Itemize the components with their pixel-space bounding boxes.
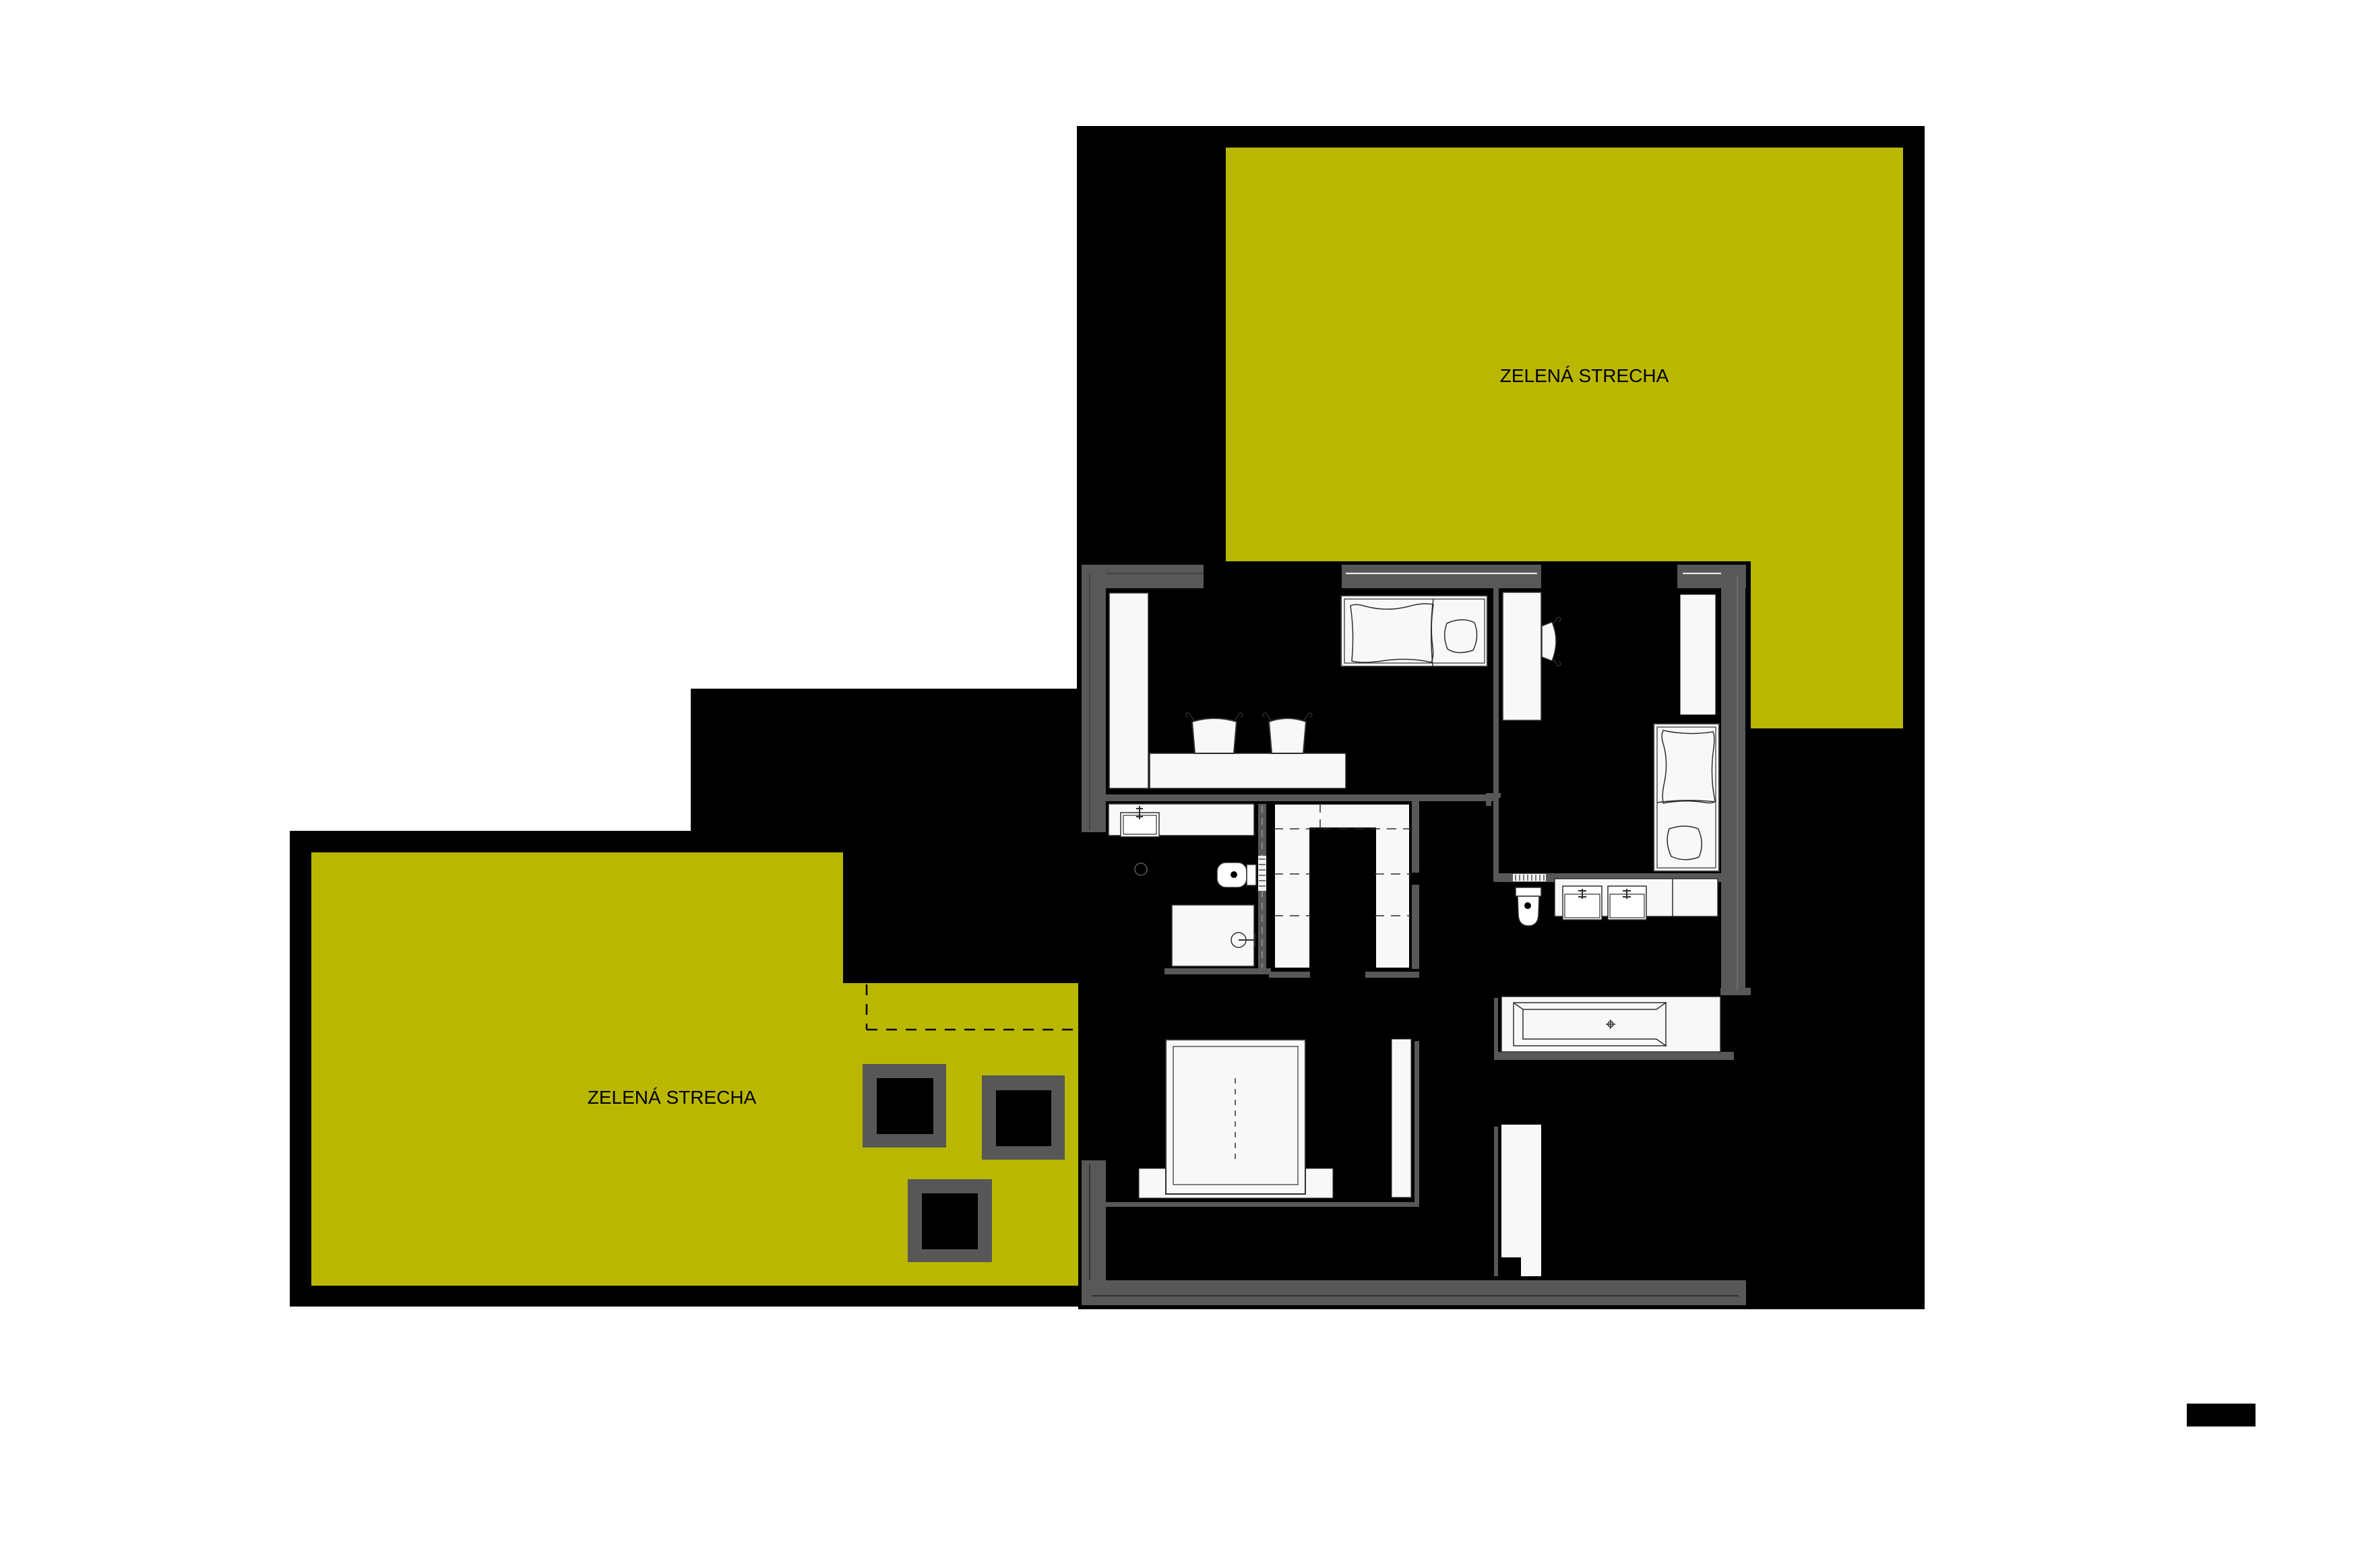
svg-text:ZELENÁ STRECHA: ZELENÁ STRECHA [1500,365,1669,386]
svg-text:ZELENÁ STRECHA: ZELENÁ STRECHA [588,1087,757,1108]
